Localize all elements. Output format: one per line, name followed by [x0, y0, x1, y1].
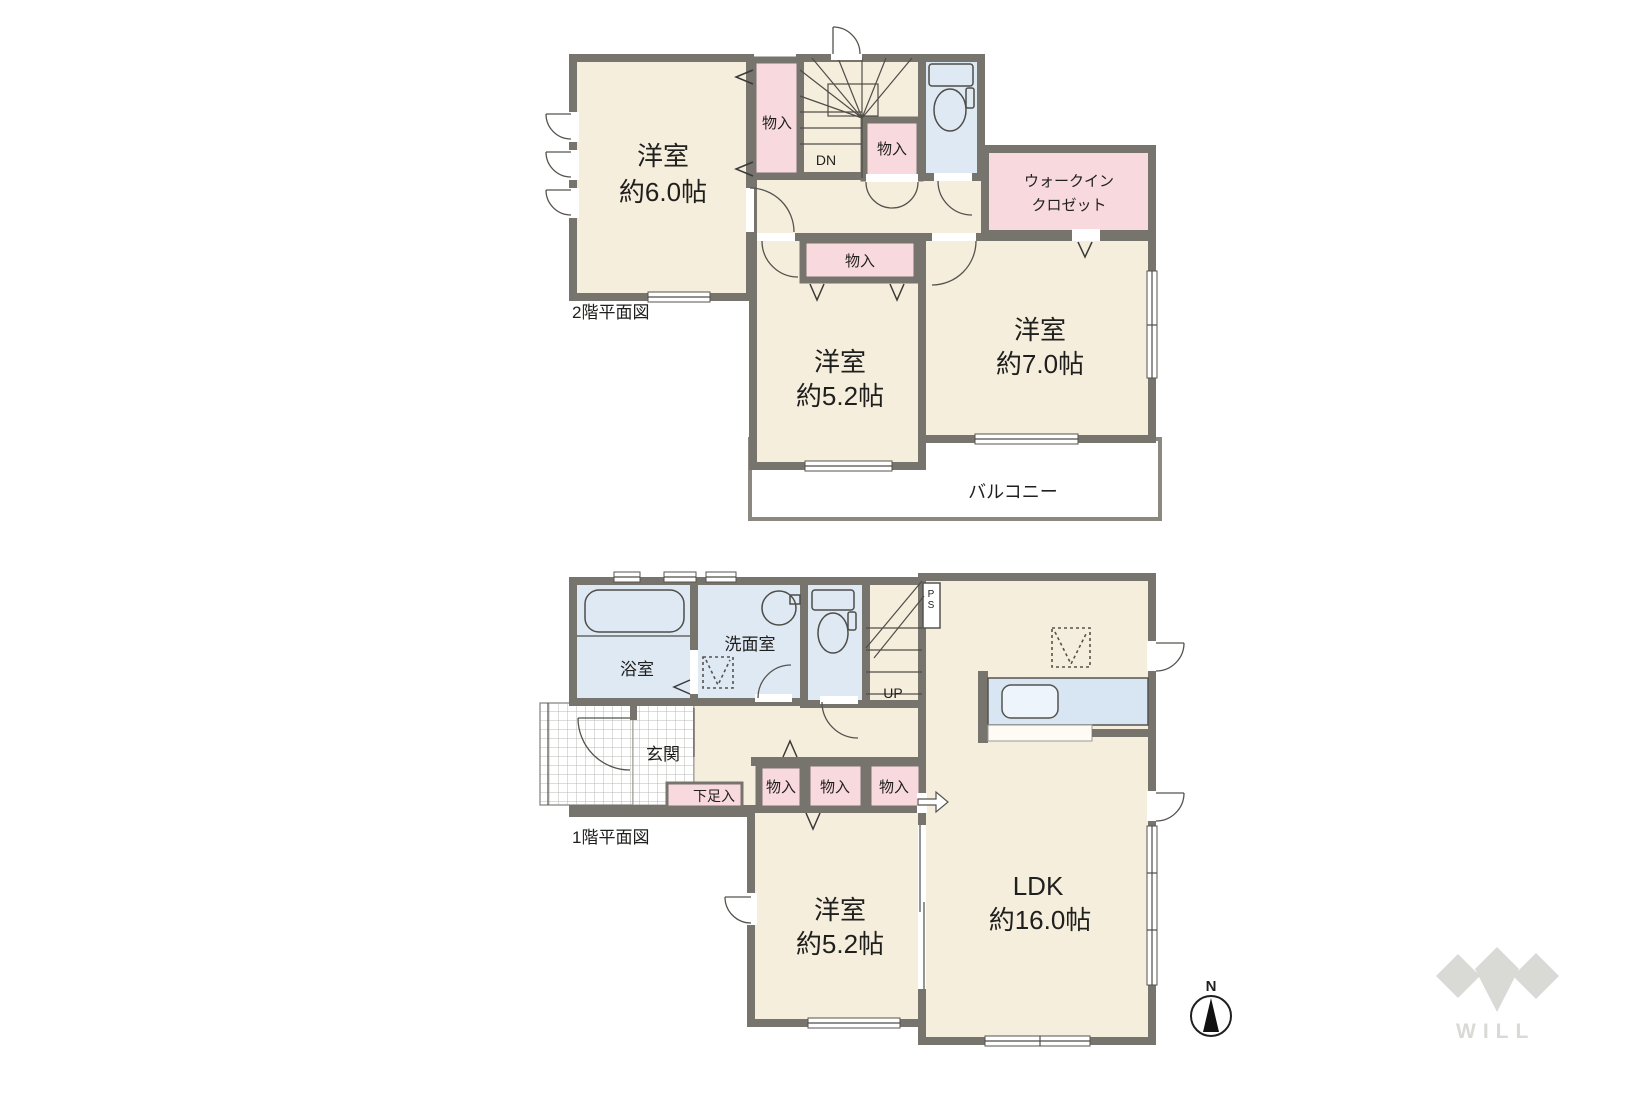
compass-north-label: N	[1206, 978, 1217, 995]
window-2f-bedroom7-bottom	[975, 434, 1078, 444]
label-2f-title: 2階平面図	[572, 303, 649, 322]
room-1f-hall	[690, 698, 926, 765]
kitchen-sink-icon	[1002, 685, 1058, 718]
room-1f-bath	[573, 581, 694, 702]
door-gap-bedroom52-2f	[757, 233, 795, 241]
floor-plan-page: 洋室 約6.0帖 物入 DN 物入 ウォークイン クロゼット 物入 洋室 約5.…	[0, 0, 1639, 1093]
label-ldk-size: 約16.0帖	[989, 905, 1092, 935]
label-stairs-up: UP	[883, 685, 902, 701]
label-2f-bedroom7-size: 約7.0帖	[996, 349, 1084, 379]
door-gap-toilet-2f	[934, 173, 972, 181]
label-bath: 浴室	[620, 660, 654, 679]
label-1f-closet1: 物入	[766, 779, 796, 796]
window-2f-left-group	[546, 112, 579, 218]
first-floor-plan: 浴室 洗面室 玄関 下足入 物入 物入 物入 UP PS 洋室 約5.2帖 LD…	[540, 572, 1184, 1046]
label-balcony: バルコニー	[968, 482, 1058, 502]
logo-diamond-middle	[1475, 947, 1519, 1012]
room-1f-toilet	[804, 581, 866, 704]
label-wic-line1: ウォークイン	[1024, 173, 1114, 190]
window-1f-bedroom52-left	[725, 893, 757, 925]
window-2f-bedroom7-right	[1147, 271, 1157, 378]
window-1f-ldk-right	[1147, 826, 1157, 985]
label-stairs-dn: DN	[816, 152, 836, 168]
label-closet-b: 物入	[877, 141, 907, 158]
room-2f-walk-in-closet	[985, 149, 1152, 234]
window-2f-bedroom52-bottom	[805, 461, 892, 471]
door-gap-toilet-1f	[820, 696, 858, 704]
label-2f-bedroom6-name: 洋室	[637, 141, 689, 171]
logo-diamond-left	[1436, 954, 1480, 998]
kitchen-counter	[978, 671, 1148, 743]
floor-plan-canvas: 洋室 約6.0帖 物入 DN 物入 ウォークイン クロゼット 物入 洋室 約5.…	[0, 0, 1639, 1093]
room-2f-toilet	[922, 58, 981, 177]
label-washroom: 洗面室	[725, 635, 776, 654]
window-1f-washroom-top	[706, 572, 736, 582]
wic-door-gap	[1072, 229, 1100, 241]
label-1f-title: 1階平面図	[572, 828, 649, 847]
label-2f-bedroom6-size: 約6.0帖	[619, 177, 707, 207]
label-shoe-closet: 下足入	[693, 788, 735, 804]
label-1f-closet2: 物入	[820, 779, 850, 796]
label-closet-c: 物入	[845, 253, 875, 270]
label-entrance: 玄関	[646, 745, 680, 764]
logo-text: WILL	[1456, 1020, 1535, 1043]
compass-icon: N	[1191, 978, 1231, 1036]
label-2f-bedroom52-size: 約5.2帖	[796, 381, 884, 411]
logo-diamond-right	[1513, 953, 1559, 999]
label-1f-closet3: 物入	[879, 779, 909, 796]
sliding-door-bedroom52-ldk	[918, 825, 926, 989]
window-1f-ldk-bottom	[985, 1036, 1090, 1046]
door-gap-bedroom6	[746, 188, 754, 232]
room-1f-ldk	[922, 577, 1152, 1041]
label-wic-line2: クロゼット	[1031, 197, 1106, 214]
will-logo: WILL	[1436, 947, 1559, 1043]
label-1f-bedroom52-name: 洋室	[814, 895, 866, 925]
door-ldk-right-upper	[1147, 641, 1184, 671]
door-gap-washroom	[755, 694, 792, 702]
door-gap-bedroom7	[932, 233, 976, 241]
label-ldk-name: LDK	[1013, 871, 1064, 901]
label-2f-bedroom7-name: 洋室	[1014, 315, 1066, 345]
label-pipe-space: PS	[926, 589, 937, 611]
second-floor-plan: 洋室 約6.0帖 物入 DN 物入 ウォークイン クロゼット 物入 洋室 約5.…	[546, 27, 1160, 519]
door-gap-closet-b	[866, 174, 918, 182]
window-2f-bedroom6-bottom	[648, 292, 710, 302]
door-gap	[831, 49, 862, 60]
label-1f-bedroom52-size: 約5.2帖	[796, 929, 884, 959]
label-2f-bedroom52-name: 洋室	[814, 347, 866, 377]
label-closet-a: 物入	[762, 115, 792, 132]
door-ldk-right-lower	[1147, 791, 1184, 821]
door-gap-bath	[690, 650, 698, 694]
window-1f-bedroom52-bottom	[808, 1018, 900, 1028]
